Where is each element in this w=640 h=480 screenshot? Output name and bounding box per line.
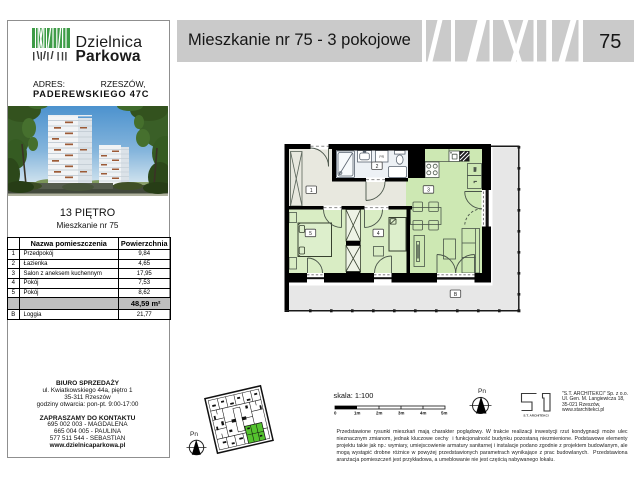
- svg-text:0: 0: [334, 411, 337, 416]
- svg-text:5m: 5m: [441, 411, 447, 416]
- svg-text:S.T. ARCHITEKCI: S.T. ARCHITEKCI: [523, 414, 548, 418]
- svg-text:3m: 3m: [398, 411, 404, 416]
- svg-text:5: 5: [309, 231, 312, 237]
- svg-text:Pn: Pn: [190, 431, 198, 438]
- svg-text:2m: 2m: [376, 411, 382, 416]
- svg-text:zm: zm: [473, 167, 477, 172]
- svg-text:1: 1: [310, 188, 313, 194]
- svg-text:L: L: [473, 181, 477, 183]
- svg-text:2: 2: [376, 164, 379, 170]
- svg-text:PR: PR: [379, 155, 384, 159]
- svg-text:Pn: Pn: [478, 388, 486, 395]
- svg-text:4: 4: [377, 231, 380, 237]
- svg-text:1m: 1m: [354, 411, 360, 416]
- svg-text:3: 3: [427, 188, 430, 194]
- svg-text:4m: 4m: [420, 411, 426, 416]
